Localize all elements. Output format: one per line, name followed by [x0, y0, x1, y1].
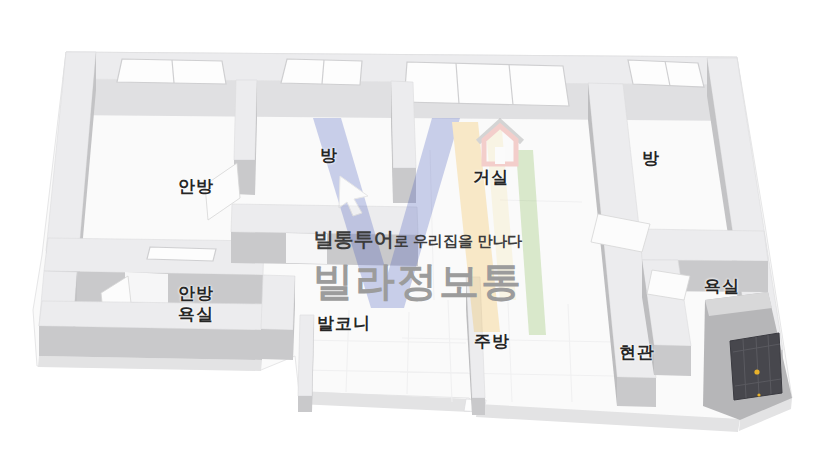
- door-knob: [754, 369, 759, 374]
- room-label-balcony: 발코니: [317, 313, 371, 334]
- window-geosil: [404, 62, 569, 106]
- floor-plan-rendering: [0, 0, 840, 472]
- room-label-bang-right: 방: [642, 148, 660, 169]
- room-label-anbang: 안방: [178, 176, 214, 197]
- balcony-left-wall: [298, 315, 314, 412]
- room-label-yoksil: 욕실: [704, 276, 740, 297]
- window-anbang: [117, 59, 226, 84]
- window-bang-left: [281, 59, 362, 85]
- room-label-jubang: 주방: [474, 331, 510, 352]
- room-label-hyeongwan: 현관: [619, 342, 655, 363]
- floorplan-stage: 안방 방 거실 방 안방 욕실 발코니 주방 현관 욕실 빌통투어로 우리집을 …: [0, 0, 840, 472]
- bath-window-strip: [147, 247, 216, 261]
- doorway-anbang-bath: [125, 272, 168, 304]
- room-label-geosil: 거실: [473, 167, 509, 188]
- doorway-bang-left: [286, 233, 327, 264]
- wall-bang-geosil: [391, 81, 416, 203]
- room-label-bang-left: 방: [320, 145, 338, 166]
- room-label-anbang-yoksil: 안방 욕실: [178, 283, 214, 325]
- wall-bang-south: [231, 204, 418, 266]
- window-bang-right: [628, 60, 704, 87]
